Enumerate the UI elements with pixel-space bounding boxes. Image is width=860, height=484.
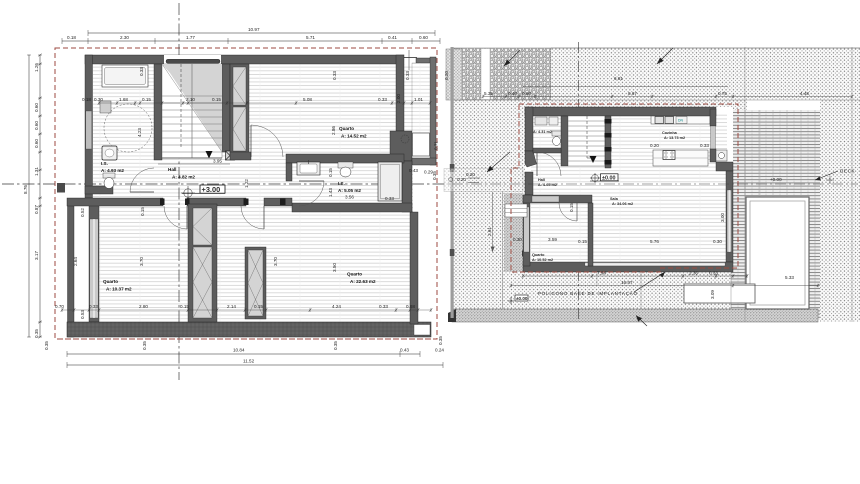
svg-text:0.60: 0.60 [419,35,428,40]
svg-text:0.71: 0.71 [434,141,439,150]
svg-text:POLIGONO BASE DE IMPLANTAÇÃO: POLIGONO BASE DE IMPLANTAÇÃO [538,291,638,296]
svg-text:0.15: 0.15 [328,168,333,177]
svg-text:Quarto: Quarto [347,272,362,277]
svg-text:0.30: 0.30 [94,97,103,102]
svg-text:0.18: 0.18 [82,97,91,102]
svg-text:10.97: 10.97 [248,27,260,32]
svg-text:A: 10.37 m2: A: 10.37 m2 [106,287,132,292]
svg-text:1.01: 1.01 [414,97,423,102]
svg-text:0.33: 0.33 [405,71,410,80]
svg-text:Quarto: Quarto [103,279,118,284]
svg-text:5.08: 5.08 [303,97,312,102]
svg-text:Sala: Sala [610,197,619,201]
svg-text:Cozinha: Cozinha [662,131,678,135]
svg-text:0.33: 0.33 [385,196,394,201]
svg-text:5.71: 5.71 [306,35,315,40]
svg-text:A: 13.73 m2: A: 13.73 m2 [664,136,685,140]
svg-text:2.61: 2.61 [487,227,492,236]
svg-text:DECK: DECK [840,169,855,174]
svg-text:0.68: 0.68 [406,304,415,309]
svg-text:5.76: 5.76 [650,239,659,244]
svg-text:0.43: 0.43 [409,168,418,173]
svg-text:0.33: 0.33 [379,304,388,309]
svg-text:0.15: 0.15 [212,97,221,102]
svg-text:0.20: 0.20 [457,177,466,182]
svg-text:3.95: 3.95 [213,159,222,164]
svg-text:A: 4.05 m2: A: 4.05 m2 [538,183,557,187]
svg-text:±0.00: ±0.00 [602,176,615,182]
svg-text:5.33: 5.33 [785,275,794,280]
svg-text:4.24: 4.24 [332,304,341,309]
svg-text:1.43: 1.43 [328,188,333,197]
svg-text:10.84: 10.84 [233,348,245,353]
svg-text:0.29: 0.29 [424,170,433,175]
svg-text:0.33: 0.33 [709,271,718,276]
svg-text:0.60: 0.60 [34,121,39,130]
svg-text:DN: DN [678,119,683,123]
svg-text:0.15: 0.15 [180,304,189,309]
svg-text:3.09: 3.09 [710,290,715,299]
svg-text:2.80: 2.80 [139,304,148,309]
svg-text:8.76: 8.76 [23,185,28,194]
svg-text:4.23: 4.23 [137,128,142,137]
svg-text:0.35: 0.35 [333,341,338,350]
svg-text:0.33: 0.33 [378,97,387,102]
svg-text:8.67: 8.67 [628,91,637,96]
svg-text:0.15: 0.15 [578,239,587,244]
svg-text:3.50: 3.50 [332,263,337,272]
svg-text:I.S.: I.S. [101,161,108,166]
svg-text:I.S.: I.S. [338,181,345,186]
svg-text:4.48: 4.48 [800,91,809,96]
svg-text:0.41: 0.41 [388,35,397,40]
svg-text:7.94: 7.94 [597,271,606,276]
svg-text:0.20: 0.20 [650,143,659,148]
svg-text:0.35: 0.35 [44,341,49,350]
svg-text:0.35: 0.35 [34,329,39,338]
svg-text:0.15: 0.15 [569,203,574,212]
svg-text:0.70: 0.70 [55,304,64,309]
svg-text:3.56: 3.56 [345,195,354,200]
svg-text:0.53: 0.53 [80,310,85,319]
svg-text:1.77: 1.77 [186,35,195,40]
svg-text:A: 22.63 m2: A: 22.63 m2 [350,279,376,284]
svg-text:0.20: 0.20 [466,172,475,177]
svg-text:3.70: 3.70 [139,257,144,266]
svg-text:0.33: 0.33 [700,143,709,148]
svg-text:0.43: 0.43 [400,348,409,353]
svg-text:2.00: 2.00 [396,94,401,103]
svg-text:+3.00: +3.00 [202,185,221,194]
svg-text:+0.00: +0.00 [770,177,782,182]
svg-text:Quarto: Quarto [532,253,545,257]
svg-text:2.64: 2.64 [73,257,78,266]
svg-text:0.52: 0.52 [80,208,85,217]
svg-text:0.20: 0.20 [444,71,449,80]
svg-text:Quarto: Quarto [339,126,354,131]
svg-text:0.60: 0.60 [34,139,39,148]
svg-text:2.14: 2.14 [227,304,236,309]
svg-text:A: 4.31 m2: A: 4.31 m2 [533,130,552,134]
svg-text:1.31: 1.31 [34,167,39,176]
svg-text:0.60: 0.60 [34,103,39,112]
svg-text:0.15: 0.15 [254,304,263,309]
svg-text:0.33: 0.33 [332,71,337,80]
svg-text:0.60: 0.60 [522,91,531,96]
svg-text:0.30: 0.30 [713,239,722,244]
svg-text:2.30: 2.30 [120,35,129,40]
svg-text:5.35: 5.35 [484,91,493,96]
svg-text:A: 4.82 m2: A: 4.82 m2 [172,175,195,180]
svg-text:0.15: 0.15 [142,97,151,102]
svg-text:0.75: 0.75 [718,91,727,96]
svg-text:3.17: 3.17 [34,251,39,260]
svg-text:1.26: 1.26 [34,63,39,72]
svg-text:11.52: 11.52 [243,359,255,364]
svg-text:2.86: 2.86 [331,126,336,135]
svg-text:0.33: 0.33 [89,304,98,309]
svg-text:0.30: 0.30 [513,237,522,242]
svg-text:A: 14.52 m2: A: 14.52 m2 [341,134,367,139]
svg-text:A: 34.06 m2: A: 34.06 m2 [612,202,633,206]
svg-text:1.68: 1.68 [119,97,128,102]
svg-text:0.87: 0.87 [34,205,39,214]
svg-text:A: 10.52 m2: A: 10.52 m2 [532,258,553,262]
svg-text:0.33: 0.33 [139,67,144,76]
svg-text:6.81: 6.81 [614,76,623,81]
svg-text:0.40: 0.40 [508,91,517,96]
svg-text:16.57: 16.57 [621,280,633,285]
svg-text:0.35: 0.35 [438,336,443,345]
svg-text:3.70: 3.70 [273,257,278,266]
svg-text:1.22: 1.22 [244,179,249,188]
svg-text:Hall: Hall [168,167,176,172]
svg-text:2.36: 2.36 [689,271,698,276]
svg-text:0.15: 0.15 [140,207,145,216]
svg-text:A: 4.93 m2: A: 4.93 m2 [101,168,124,173]
svg-text:Hall: Hall [538,178,545,182]
svg-text:0.18: 0.18 [67,35,76,40]
svg-text:0.35: 0.35 [142,341,147,350]
svg-text:±0.00: ±0.00 [516,296,528,301]
svg-text:0.24: 0.24 [435,348,444,353]
svg-text:2.10: 2.10 [186,97,195,102]
svg-text:3.00: 3.00 [720,213,725,222]
svg-text:A: 5.05 m2: A: 5.05 m2 [338,188,361,193]
svg-text:3.59: 3.59 [548,237,557,242]
